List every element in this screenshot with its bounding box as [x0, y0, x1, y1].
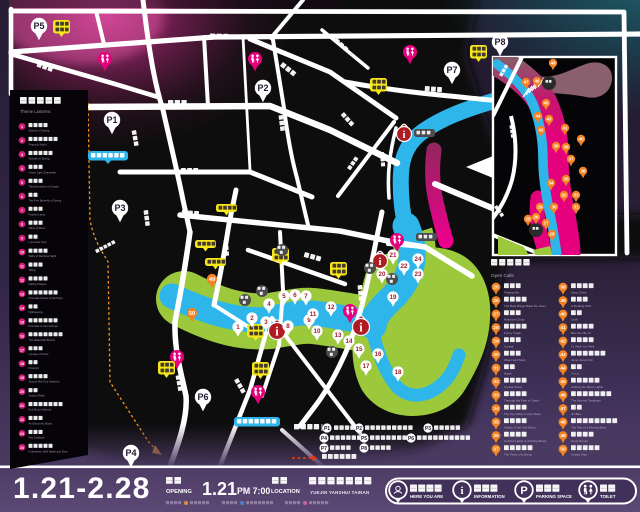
svg-text:40: 40 — [578, 137, 584, 142]
svg-text:14: 14 — [20, 307, 24, 311]
svg-text:Snowy Shells: Snowy Shells — [29, 394, 46, 398]
svg-text:12: 12 — [328, 304, 335, 311]
svg-text:5: 5 — [282, 293, 286, 300]
svg-text:Jin Bao: Jin Bao — [571, 412, 581, 416]
svg-text:13: 13 — [335, 332, 342, 339]
svg-text:Feather Lamp: Feather Lamp — [29, 212, 46, 216]
svg-text:31: 31 — [493, 366, 499, 372]
svg-text:P4: P4 — [321, 436, 327, 442]
svg-text:3: 3 — [264, 319, 268, 326]
svg-text:28: 28 — [549, 232, 555, 237]
svg-text:10: 10 — [20, 251, 24, 255]
svg-text:40: 40 — [560, 312, 566, 318]
svg-text:PARKING SPACE: PARKING SPACE — [536, 494, 572, 499]
svg-text:15: 15 — [356, 346, 363, 353]
svg-text:5: 5 — [21, 181, 23, 185]
svg-text:P5: P5 — [33, 21, 44, 31]
svg-text:TOILET: TOILET — [600, 494, 616, 499]
svg-text:1.21-2.28: 1.21-2.28 — [13, 472, 151, 505]
svg-text:Ben Sen Bu Xi: Ben Sen Bu Xi — [571, 331, 591, 335]
svg-text:P2: P2 — [257, 83, 268, 93]
svg-text:11: 11 — [310, 311, 317, 318]
svg-text:Jilting: Jilting — [29, 268, 36, 272]
svg-text:P2: P2 — [356, 426, 362, 432]
svg-text:39: 39 — [560, 298, 566, 304]
svg-text:Crystal Vision: Crystal Vision — [504, 385, 523, 389]
svg-text:Firework: Firework — [29, 366, 40, 370]
svg-text:PM 7:00: PM 7:00 — [237, 486, 270, 496]
svg-text:Colorful Lights on Fishing Boa: Colorful Lights on Fishing Boats — [504, 439, 547, 443]
svg-text:i: i — [378, 256, 381, 268]
svg-text:8: 8 — [286, 323, 290, 330]
svg-text:1: 1 — [236, 324, 240, 331]
svg-text:24: 24 — [415, 256, 422, 263]
svg-text:P5: P5 — [361, 436, 367, 442]
svg-text:OPENING: OPENING — [166, 489, 192, 495]
svg-text:Kissy Chick: Kissy Chick — [571, 291, 587, 295]
svg-text:Walls of Rainbow Night: Walls of Rainbow Night — [29, 254, 57, 258]
svg-text:4: 4 — [267, 301, 271, 308]
svg-text:3: 3 — [21, 153, 23, 157]
svg-text:i: i — [460, 485, 463, 497]
svg-text:43: 43 — [560, 352, 566, 358]
svg-text:Falling Shapes: Falling Shapes — [29, 282, 47, 286]
svg-text:i: i — [275, 324, 279, 338]
svg-text:P1: P1 — [106, 115, 117, 125]
svg-text:17: 17 — [20, 348, 24, 352]
svg-text:41: 41 — [560, 325, 566, 331]
svg-text:i: i — [402, 129, 405, 141]
svg-text:2: 2 — [250, 315, 254, 322]
svg-text:36: 36 — [493, 433, 499, 439]
svg-text:Wonder of Spring: Wonder of Spring — [29, 157, 50, 161]
svg-text:i: i — [359, 320, 363, 334]
svg-text:Luminous Door: Luminous Door — [29, 240, 47, 244]
svg-text:YUEJIN YANSHUI TAINAN: YUEJIN YANSHUI TAINAN — [310, 490, 369, 495]
svg-text:7: 7 — [21, 209, 23, 213]
svg-text:Knitting the Moon Lights: Knitting the Moon Lights — [571, 385, 604, 389]
svg-text:Around Mid-Tour Seasons: Around Mid-Tour Seasons — [29, 380, 61, 384]
svg-text:49: 49 — [209, 277, 215, 283]
svg-text:Through the Past of Yuejin: Through the Past of Yuejin — [504, 399, 540, 403]
svg-text:HERE YOU ARE: HERE YOU ARE — [410, 494, 443, 499]
svg-text:45: 45 — [543, 101, 549, 106]
svg-text:35: 35 — [493, 420, 499, 426]
svg-text:P7: P7 — [321, 446, 327, 452]
svg-text:23: 23 — [20, 432, 24, 436]
svg-text:32: 32 — [493, 379, 499, 385]
svg-text:28: 28 — [493, 325, 499, 331]
svg-text:P8: P8 — [494, 37, 505, 47]
svg-text:35: 35 — [563, 177, 569, 182]
svg-text:Green Light Chandelier: Green Light Chandelier — [29, 170, 57, 174]
svg-text:20: 20 — [379, 271, 386, 278]
svg-text:21: 21 — [390, 252, 397, 259]
svg-text:47: 47 — [560, 406, 566, 412]
svg-text:Prismatic Coral Icebergs: Prismatic Coral Icebergs — [29, 324, 59, 328]
svg-text:The Top Value is Like Water: The Top Value is Like Water — [504, 412, 541, 416]
svg-text:25: 25 — [493, 285, 499, 291]
svg-text:1.21: 1.21 — [202, 479, 237, 499]
svg-text:27: 27 — [543, 221, 549, 226]
svg-text:45: 45 — [560, 379, 566, 385]
svg-text:2: 2 — [21, 139, 23, 143]
svg-text:A Floating Well: A Floating Well — [571, 304, 591, 308]
svg-text:Vitality of the Soft Moon: Vitality of the Soft Moon — [504, 426, 536, 430]
svg-text:18: 18 — [395, 369, 402, 376]
svg-text:P3: P3 — [425, 426, 431, 432]
svg-text:P3: P3 — [114, 203, 125, 213]
svg-text:The Waterside Branch: The Waterside Branch — [29, 338, 56, 342]
svg-text:An Electronic Boats: An Electronic Boats — [29, 422, 53, 426]
svg-text:48: 48 — [560, 420, 566, 426]
svg-text:14: 14 — [346, 338, 353, 345]
svg-text:34: 34 — [493, 406, 499, 412]
svg-text:50: 50 — [189, 311, 195, 317]
svg-text:33: 33 — [573, 193, 579, 198]
svg-text:1: 1 — [21, 125, 23, 129]
svg-text:6: 6 — [21, 195, 23, 199]
svg-text:37: 37 — [568, 157, 574, 162]
svg-text:38: 38 — [563, 145, 569, 150]
svg-text:27: 27 — [493, 312, 499, 318]
svg-text:Crystal: Crystal — [504, 345, 514, 349]
svg-text:18: 18 — [20, 362, 24, 366]
svg-text:21: 21 — [20, 404, 24, 408]
svg-text:The Boat Brings Back the Glory: The Boat Brings Back the Glory — [504, 304, 547, 308]
svg-text:Prismatic Ocean of the Days: Prismatic Ocean of the Days — [29, 296, 64, 300]
svg-text:Ray Scallows: Ray Scallows — [29, 436, 46, 440]
svg-text:30: 30 — [493, 352, 499, 358]
svg-text:Hatch: Hatch — [504, 372, 512, 376]
svg-text:42: 42 — [560, 339, 566, 345]
svg-text:36: 36 — [580, 169, 586, 174]
svg-text:30: 30 — [551, 205, 557, 210]
svg-text:The Fine Butterfly of Spring: The Fine Butterfly of Spring — [29, 198, 62, 202]
svg-text:Funny Yuejin: Funny Yuejin — [504, 331, 522, 335]
svg-text:P7: P7 — [446, 65, 457, 75]
svg-text:Theme Lanterns: Theme Lanterns — [20, 109, 51, 114]
svg-text:The Moored Tangyuan: The Moored Tangyuan — [571, 399, 601, 403]
svg-text:44: 44 — [560, 366, 566, 372]
svg-text:To Wish You Well: To Wish You Well — [571, 345, 594, 349]
svg-text:The Tears of Iceberg: The Tears of Iceberg — [504, 453, 532, 457]
svg-text:34: 34 — [548, 181, 554, 186]
svg-text:38: 38 — [560, 285, 566, 291]
svg-text:32: 32 — [561, 193, 567, 198]
svg-text:10: 10 — [314, 328, 321, 335]
svg-text:Craft: Craft — [571, 318, 578, 322]
svg-text:Nightseeing: Nightseeing — [29, 310, 44, 314]
svg-text:47: 47 — [523, 80, 529, 85]
svg-text:8: 8 — [21, 223, 23, 227]
svg-text:26: 26 — [533, 215, 539, 220]
svg-text:P4: P4 — [125, 448, 136, 458]
svg-text:41: 41 — [562, 126, 568, 131]
svg-text:Jump Jump Fish: Jump Jump Fish — [571, 358, 593, 362]
svg-text:19: 19 — [20, 376, 24, 380]
svg-text:P: P — [520, 485, 527, 497]
svg-text:Peacock World: Peacock World — [29, 143, 48, 147]
svg-text:39: 39 — [553, 144, 559, 149]
svg-text:P6: P6 — [197, 392, 208, 402]
svg-text:49: 49 — [560, 433, 566, 439]
svg-text:15: 15 — [20, 320, 24, 324]
svg-text:Transformation of Cicada: Transformation of Cicada — [29, 184, 60, 188]
svg-text:The Tale of a Moving Boat: The Tale of a Moving Boat — [571, 426, 606, 430]
svg-text:22: 22 — [401, 263, 408, 270]
svg-text:37: 37 — [493, 447, 499, 453]
svg-text:Lounge of Ghost: Lounge of Ghost — [29, 352, 49, 356]
svg-text:Maze of Moon: Maze of Moon — [29, 226, 47, 230]
svg-text:48: 48 — [550, 61, 556, 66]
svg-text:9: 9 — [21, 237, 23, 241]
svg-text:End Moon Delivery: End Moon Delivery — [29, 408, 52, 412]
svg-text:16: 16 — [20, 334, 24, 338]
svg-text:20: 20 — [20, 390, 24, 394]
svg-text:29: 29 — [493, 339, 499, 345]
svg-text:Good Return: Good Return — [571, 439, 589, 443]
svg-text:42: 42 — [538, 128, 544, 133]
svg-text:25: 25 — [525, 217, 531, 222]
svg-text:P1: P1 — [324, 426, 330, 432]
svg-text:Yu Lin: Yu Lin — [571, 372, 580, 376]
svg-text:Smoky Way: Smoky Way — [571, 453, 587, 457]
svg-text:16: 16 — [375, 351, 382, 358]
svg-text:33: 33 — [493, 393, 499, 399]
svg-text:12: 12 — [20, 279, 24, 283]
svg-text:11: 11 — [20, 265, 24, 269]
svg-text:17: 17 — [363, 363, 370, 370]
svg-text:Fishing Net: Fishing Net — [504, 291, 519, 295]
svg-text:In Between With Water and Step: In Between With Water and Step — [29, 449, 68, 453]
svg-text:26: 26 — [493, 298, 499, 304]
svg-text:Water and Stars: Water and Stars — [504, 358, 526, 362]
svg-text:Women of Spring: Women of Spring — [29, 129, 50, 133]
svg-text:7: 7 — [304, 293, 308, 300]
svg-text:44: 44 — [535, 114, 541, 119]
svg-text:50: 50 — [560, 447, 566, 453]
svg-text:Open Calls: Open Calls — [491, 273, 514, 278]
svg-text:6: 6 — [293, 292, 297, 299]
svg-text:4: 4 — [21, 167, 23, 171]
svg-text:Rainbow Cloud: Rainbow Cloud — [504, 318, 525, 322]
svg-text:29: 29 — [537, 205, 543, 210]
svg-text:INFORMATION: INFORMATION — [474, 494, 505, 499]
svg-text:LOCATION: LOCATION — [271, 489, 300, 495]
svg-text:46: 46 — [534, 79, 540, 84]
svg-text:24: 24 — [20, 446, 24, 450]
svg-text:13: 13 — [20, 293, 24, 297]
svg-text:23: 23 — [415, 271, 422, 278]
svg-text:31: 31 — [573, 205, 579, 210]
svg-text:19: 19 — [390, 294, 397, 301]
svg-text:46: 46 — [560, 393, 566, 399]
svg-text:P8: P8 — [361, 446, 367, 452]
svg-text:22: 22 — [20, 418, 24, 422]
svg-text:P6: P6 — [408, 436, 414, 442]
svg-text:43: 43 — [546, 117, 552, 122]
